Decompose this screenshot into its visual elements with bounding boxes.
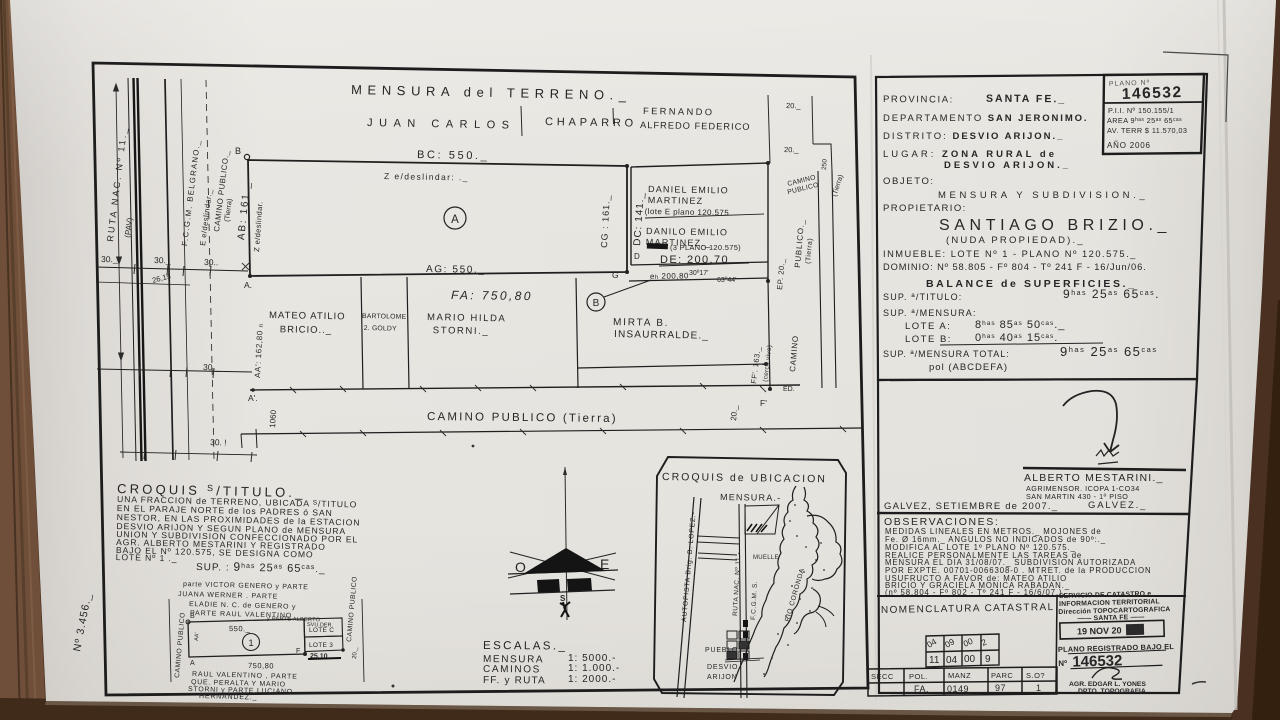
svg-text:S.O?: S.O? <box>1026 671 1045 680</box>
svg-text:(NUDA PROPIEDAD)._: (NUDA PROPIEDAD)._ <box>946 235 1085 246</box>
svg-text:20._: 20._ <box>786 101 802 111</box>
svg-text:SECC: SECC <box>871 672 894 681</box>
svg-text:MARIO HILDA: MARIO HILDA <box>427 312 507 324</box>
svg-text:1: 1 <box>248 638 253 649</box>
svg-text:30. !: 30. ! <box>210 437 227 448</box>
svg-text:F: F <box>296 648 300 655</box>
svg-text:ESCALAS._: ESCALAS._ <box>483 640 567 653</box>
svg-text:pol (ABCDEFA): pol (ABCDEFA) <box>929 362 1008 373</box>
svg-text:MUELLE: MUELLE <box>753 555 779 561</box>
svg-text:2. GOLDY: 2. GOLDY <box>364 325 397 333</box>
svg-text:SUP. ª/MENSURA TOTAL:: SUP. ª/MENSURA TOTAL: <box>883 349 1010 359</box>
svg-text:CAMINO PUBLICO (Tierra): CAMINO PUBLICO (Tierra) <box>427 411 618 425</box>
svg-text:MARTINEZ: MARTINEZ <box>648 195 704 206</box>
svg-text:1: 2000.-: 1: 2000.- <box>568 674 616 685</box>
svg-text:PARC: PARC <box>991 671 1013 680</box>
svg-text:LOTE A:: LOTE A: <box>905 321 951 332</box>
svg-text:0149: 0149 <box>947 684 969 694</box>
svg-text:20._: 20._ <box>352 646 359 659</box>
svg-text:S: S <box>560 594 566 603</box>
svg-text:DESVIO ARIJON._: DESVIO ARIJON._ <box>944 160 1071 171</box>
svg-text:BARTOLOME: BARTOLOME <box>362 313 407 321</box>
svg-text:9: 9 <box>985 654 991 665</box>
svg-text:1: 1.000.-: 1: 1.000.- <box>568 663 620 674</box>
svg-text:BRICIO.._: BRICIO.._ <box>280 324 332 336</box>
svg-text:550._: 550._ <box>229 624 251 633</box>
svg-text:04: 04 <box>946 655 958 666</box>
svg-text:FA.: FA. <box>914 684 929 694</box>
svg-text:ALBERTO MESTARINI._: ALBERTO MESTARINI._ <box>1024 472 1164 484</box>
svg-text:MATEO ATILIO: MATEO ATILIO <box>269 310 346 322</box>
svg-text:BC: 550._: BC: 550._ <box>417 149 490 162</box>
svg-text:20._: 20._ <box>729 404 739 421</box>
svg-text:P.I.I. Nº 150.155/1: P.I.I. Nº 150.155/1 <box>1108 106 1174 115</box>
svg-text:SANTA FE._: SANTA FE._ <box>986 93 1066 106</box>
svg-text:G: G <box>612 270 619 280</box>
svg-text:POL.: POL. <box>909 672 928 681</box>
svg-text:1060: 1060 <box>268 409 278 428</box>
svg-text:CHAPARRO: CHAPARRO <box>545 116 637 130</box>
svg-text:30._: 30._ <box>154 255 171 265</box>
svg-text:MENSURA.-: MENSURA.- <box>720 492 781 503</box>
svg-text:GALVEZ, SETIEMBRE de 2007._: GALVEZ, SETIEMBRE de 2007._ <box>884 501 1058 512</box>
svg-text:97: 97 <box>995 683 1006 693</box>
svg-text:30._: 30._ <box>203 362 220 372</box>
svg-text:PROVINCIA:: PROVINCIA: <box>883 94 954 105</box>
svg-text:LUGAR: ZONA RURAL de: LUGAR: ZONA RURAL de <box>883 149 1057 160</box>
svg-text:DEPARTAMENTO SAN JERONIMO.: DEPARTAMENTO SAN JERONIMO. <box>883 113 1088 124</box>
svg-text:00: 00 <box>964 654 976 665</box>
svg-text:AÑO 2006: AÑO 2006 <box>1107 141 1151 150</box>
svg-text:20._: 20._ <box>784 145 800 155</box>
svg-text:30º17': 30º17' <box>689 270 708 277</box>
svg-text:A'.: A'. <box>248 393 258 403</box>
svg-text:DANIEL EMILIO: DANIEL EMILIO <box>648 184 729 195</box>
svg-text:30..: 30.. <box>204 257 218 267</box>
svg-text:146532: 146532 <box>1122 84 1183 103</box>
svg-text:ED.: ED. <box>783 386 795 393</box>
svg-text:(3 PLANO 120.575): (3 PLANO 120.575) <box>670 243 741 252</box>
svg-text:A: A <box>190 660 195 667</box>
svg-text:F': F' <box>760 398 767 408</box>
svg-text:AREA 9has 25as 65cas: AREA 9has 25as 65cas <box>1107 116 1182 125</box>
svg-text:FA: 750,80: FA: 750,80 <box>451 288 533 303</box>
svg-text:LOTE 3: LOTE 3 <box>309 642 333 649</box>
svg-text:AA': AA' <box>194 632 200 641</box>
svg-text:11: 11 <box>929 655 940 666</box>
svg-text:DPTO. TOPOGRAFIA: DPTO. TOPOGRAFIA <box>1078 688 1146 695</box>
svg-text:MENSURA Y SUBDIVISION._: MENSURA Y SUBDIVISION._ <box>938 190 1148 201</box>
svg-text:LOTE B:: LOTE B: <box>905 334 952 345</box>
svg-text:AGR. EDGAR L. YONES: AGR. EDGAR L. YONES <box>1069 681 1146 688</box>
svg-text:A: A <box>451 214 459 226</box>
svg-text:19 NOV 20: 19 NOV 20 <box>1077 625 1122 636</box>
svg-text:Z e/deslindar: ._: Z e/deslindar: ._ <box>384 171 469 182</box>
svg-text:B: B <box>593 298 600 309</box>
svg-text:63º44': 63º44' <box>717 277 736 284</box>
svg-text:B: B <box>190 613 195 620</box>
svg-text:FERNANDO: FERNANDO <box>643 106 715 117</box>
svg-text:30._: 30._ <box>101 254 118 264</box>
svg-text:FF. y RUTA: FF. y RUTA <box>483 675 546 686</box>
svg-text:ALFREDO FEDERICO: ALFREDO FEDERICO <box>640 120 751 132</box>
svg-text:LOTE C: LOTE C <box>309 627 334 634</box>
svg-text:D: D <box>634 252 640 261</box>
svg-text:SANTIAGO BRIZIO._: SANTIAGO BRIZIO._ <box>939 217 1171 234</box>
svg-text:DANILO EMILIO: DANILO EMILIO <box>646 226 728 237</box>
svg-text:INMUEBLE: LOTE Nº 1 - PLANO Nº: INMUEBLE: LOTE Nº 1 - PLANO Nº 120.575._ <box>883 249 1137 259</box>
svg-text:SUP. ª/TITULO:: SUP. ª/TITULO: <box>883 292 962 302</box>
svg-text:A.: A. <box>244 280 252 290</box>
svg-text:GALVEZ._: GALVEZ._ <box>1088 500 1147 511</box>
svg-text:B: B <box>235 146 241 156</box>
svg-text:ARIJON: ARIJON <box>707 674 737 681</box>
svg-text:INSAURRALDE._: INSAURRALDE._ <box>614 329 709 342</box>
svg-text:MIRTA B.: MIRTA B. <box>613 317 669 329</box>
svg-text:PROPIETARIO:: PROPIETARIO: <box>883 203 967 214</box>
svg-text:CAMINOS: CAMINOS <box>483 664 541 675</box>
svg-text:MANZ: MANZ <box>948 671 971 680</box>
svg-text:O: O <box>515 559 526 575</box>
svg-text:LOTE Nº 1 ._: LOTE Nº 1 ._ <box>116 552 178 563</box>
svg-text:SUP. ª/MENSURA:: SUP. ª/MENSURA: <box>883 308 977 318</box>
svg-text:AV. TERR $ 11.570,03: AV. TERR $ 11.570,03 <box>1107 126 1187 135</box>
svg-text:250: 250 <box>821 159 829 171</box>
svg-text:DESVIO: DESVIO <box>707 664 738 671</box>
svg-text:STORNI._: STORNI._ <box>433 325 490 337</box>
svg-text:OBJETO:: OBJETO: <box>883 176 935 187</box>
svg-text:750,80: 750,80 <box>248 661 274 670</box>
svg-text:AG: 550._: AG: 550._ <box>426 264 486 276</box>
svg-text:Nº: Nº <box>1058 659 1067 668</box>
svg-text:CROQUIS de UBICACION: CROQUIS de UBICACION <box>662 471 827 485</box>
svg-text:DISTRITO: DESVIO ARIJON._: DISTRITO: DESVIO ARIJON._ <box>883 131 1064 142</box>
svg-text:1: 1 <box>1036 683 1042 693</box>
svg-text:PUEBLO: PUEBLO <box>705 647 738 654</box>
svg-text:DOMINIO: Nº 58.805 - Fº 804 -: DOMINIO: Nº 58.805 - Fº 804 - Tº 241 F -… <box>883 262 1147 272</box>
